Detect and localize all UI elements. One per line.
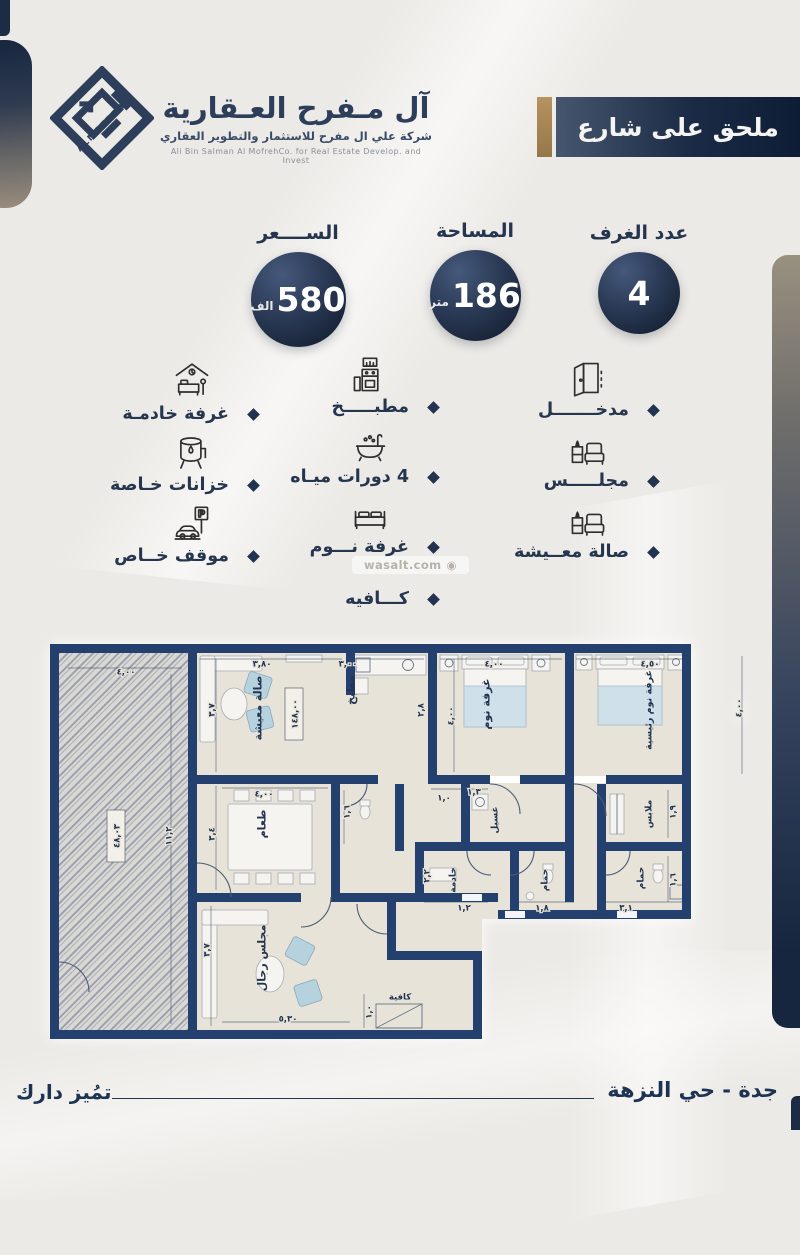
diamond-bullet-icon <box>427 541 440 554</box>
dimension-label: ٤٨,٠٣ <box>107 810 125 862</box>
svg-text:١,٠: ١,٠ <box>365 1005 375 1019</box>
feature-bathrooms: 4 دورات ميـاه <box>272 425 438 487</box>
svg-text:٣,١: ٣,١ <box>619 904 633 914</box>
almofreh-logo-icon: ALMOFREH <box>50 66 154 170</box>
kitchen-icon <box>350 355 390 395</box>
dimension-label: ٣,٧ <box>208 702 218 716</box>
feature-entrance: مدخـــــــل <box>488 358 658 420</box>
svg-text:١٤٨,٠٠: ١٤٨,٠٠ <box>291 699 301 728</box>
dimension-label: ١,٦ <box>343 805 353 819</box>
dimension-label: ٤,٥٠ <box>641 660 660 670</box>
svg-text:٣,٧: ٣,٧ <box>208 702 218 716</box>
feature-label: مدخـــــــل <box>538 400 629 420</box>
dimension-label: ١,٦ <box>669 873 679 887</box>
feature-label: مجلـــــس <box>544 471 629 491</box>
room-label: غرفة نوم رئيسية <box>644 670 655 750</box>
svg-text:٤,٠٠: ٤,٠٠ <box>117 668 136 678</box>
svg-text:١,٢: ١,٢ <box>457 904 471 914</box>
stat-area: المساحة 186 متر <box>407 220 543 341</box>
svg-text:٣,٤: ٣,٤ <box>208 827 218 841</box>
svg-text:٤,٠٠: ٤,٠٠ <box>735 699 745 718</box>
diamond-bullet-icon <box>247 550 260 563</box>
svg-text:٤,٥٠: ٤,٥٠ <box>641 660 660 670</box>
svg-text:٥,٣٠: ٥,٣٠ <box>279 1015 298 1025</box>
right-decoration-bar <box>772 255 800 1028</box>
watermark-text: wasalt.com <box>364 558 442 572</box>
features-column-left: غرفة خادمـة خزانات خـاصة P موقف خــاص <box>96 362 258 566</box>
dimension-label: ٣,٠٠ <box>339 660 358 670</box>
dimension-label: ١,٠ <box>437 794 451 804</box>
feature-cafe: كـــافيه <box>272 587 438 609</box>
living-sofa-icon <box>568 500 608 540</box>
price-value: 580 <box>277 283 346 316</box>
dimension-label: ٣,٧ <box>203 942 213 956</box>
svg-text:٤٨,٠٣: ٤٨,٠٣ <box>113 823 123 848</box>
company-subtitle-en: Ali Bin Salman Al MofrehCo. for Real Est… <box>158 147 434 165</box>
svg-text:خادمة: خادمة <box>449 867 459 893</box>
svg-text:٣,٠٠: ٣,٠٠ <box>339 660 358 670</box>
door-icon <box>568 358 608 398</box>
company-subtitle: شركة علي ال مفرح للاستثمار والتطوير العق… <box>158 129 434 143</box>
svg-text:حمام: حمام <box>541 869 551 892</box>
brand-text-block: آل مـفرح العـقارية شركة علي ال مفرح للاس… <box>158 92 434 165</box>
watermark-pin-icon: ◉ <box>447 558 457 572</box>
svg-text:غسيل: غسيل <box>491 806 501 833</box>
diamond-bullet-icon <box>427 593 440 606</box>
dimension-label: ٤,٠٠ <box>117 668 136 678</box>
dimension-label: ٥,٣٠ <box>279 1015 298 1025</box>
svg-text:١,٩: ١,٩ <box>669 804 679 818</box>
dimension-label: ١,٣ <box>467 788 481 798</box>
corner-decoration <box>791 1096 800 1130</box>
water-tank-icon <box>172 433 212 473</box>
diamond-bullet-icon <box>647 546 660 559</box>
diamond-bullet-icon <box>427 471 440 484</box>
diamond-bullet-icon <box>247 408 260 421</box>
features-column-right: مدخـــــــل مجلـــــس صالة معــيشة <box>488 358 658 562</box>
feature-label: كـــافيه <box>345 589 409 609</box>
dimension-label: ٤,٠٠ <box>485 660 504 670</box>
svg-text:٤,٠٠: ٤,٠٠ <box>447 707 457 726</box>
footer-tagline: تمُيز دارك <box>16 1080 111 1104</box>
banner-label: ملحق على شارع <box>577 113 779 142</box>
feature-label: 4 دورات ميـاه <box>290 467 409 487</box>
dimension-label: ٢,٨ <box>417 702 427 716</box>
feature-living-room: صالة معــيشة <box>488 500 658 562</box>
feature-label: صالة معــيشة <box>514 542 629 562</box>
dimension-label: ٢,٢ <box>423 868 433 882</box>
area-label: المساحة <box>436 220 514 242</box>
room-label: طعام <box>256 810 269 839</box>
feature-water-tanks: خزانات خـاصة <box>96 433 258 495</box>
parking-icon: P <box>172 504 212 544</box>
rooms-value: 4 <box>628 277 651 310</box>
diamond-bullet-icon <box>647 475 660 488</box>
dimension-label: ٤,٠٠ <box>255 790 274 800</box>
dimension-label: ١٤٨,٠٠ <box>285 688 303 740</box>
left-decoration-bar <box>0 40 32 208</box>
feature-label: مطبـــــخ <box>331 397 409 417</box>
area-circle: 186 متر <box>430 250 521 341</box>
room-label: مطبخ <box>345 675 358 705</box>
svg-text:ملابس: ملابس <box>645 800 655 829</box>
feature-bedroom: غرفة نـــوم <box>272 495 438 557</box>
maid-room-icon <box>172 362 212 402</box>
room-label: مجلس رجال <box>256 925 269 992</box>
room-label: غسيل <box>491 806 501 833</box>
dimension-label: ١,٨ <box>535 904 549 914</box>
svg-text:مطبخ: مطبخ <box>345 675 358 705</box>
feature-label: غرفة خادمـة <box>122 404 229 424</box>
dimension-label: ٣,٨٠ <box>253 660 272 670</box>
room-label: غرفة نوم <box>480 678 493 729</box>
floor-plan: صالة معيشةمطبخغرفة نومغرفة نوم رئيسيةملا… <box>50 644 750 1042</box>
feature-label: غرفة نـــوم <box>310 537 409 557</box>
room-label: خادمة <box>449 867 459 893</box>
svg-text:٣,٧: ٣,٧ <box>203 942 213 956</box>
area-value: 186 <box>452 279 521 312</box>
svg-text:غرفة نوم رئيسية: غرفة نوم رئيسية <box>644 670 655 750</box>
dimension-label: ١,٢ <box>457 904 471 914</box>
feature-kitchen: مطبـــــخ <box>272 355 438 417</box>
rooms-circle: 4 <box>598 252 680 334</box>
street-annex-banner: ملحق على شارع <box>537 97 800 157</box>
room-label: حمام <box>637 867 647 890</box>
feature-majlis: مجلـــــس <box>488 429 658 491</box>
svg-text:١,٠: ١,٠ <box>437 794 451 804</box>
dimension-label: ٤,٠٠ <box>735 699 745 718</box>
svg-text:١١,٢: ١١,٢ <box>165 826 175 846</box>
rooms-label: عدد الغرف <box>590 222 689 244</box>
banner-gold-bar <box>537 97 552 157</box>
feature-parking: P موقف خــاص <box>96 504 258 566</box>
banner-body: ملحق على شارع <box>556 97 800 157</box>
svg-text:٤,٠٠: ٤,٠٠ <box>485 660 504 670</box>
room-label: كافية <box>389 993 411 1003</box>
dimension-label: ٣,٤ <box>208 827 218 841</box>
bathtub-icon <box>350 425 390 465</box>
diamond-bullet-icon <box>427 401 440 414</box>
svg-text:١,٣: ١,٣ <box>467 788 481 798</box>
price-circle: 580 الف <box>251 252 346 347</box>
dimension-label: ٤,٠٠ <box>447 707 457 726</box>
room-label: صالة معيشة <box>252 676 265 741</box>
company-title: آل مـفرح العـقارية <box>158 92 434 125</box>
diamond-bullet-icon <box>247 479 260 492</box>
svg-text:P: P <box>198 509 205 520</box>
bed-icon <box>350 495 390 535</box>
price-label: الســــعر <box>257 222 339 244</box>
room-label: ملابس <box>645 800 655 829</box>
dimension-label: ١,٠ <box>365 1005 375 1019</box>
price-unit: الف <box>251 299 274 316</box>
feature-maid-room: غرفة خادمـة <box>96 362 258 424</box>
svg-text:كافية: كافية <box>389 993 411 1003</box>
footer-divider-line <box>112 1098 594 1099</box>
feature-label: خزانات خـاصة <box>110 475 229 495</box>
dimension-label: ١,٩ <box>669 804 679 818</box>
dimension-label: ٣,١ <box>619 904 633 914</box>
footer-location: جدة - حي النزهة <box>607 1078 778 1102</box>
svg-text:مجلس رجال: مجلس رجال <box>256 925 269 992</box>
svg-text:٢,٢: ٢,٢ <box>423 868 433 882</box>
svg-text:صالة معيشة: صالة معيشة <box>252 676 265 741</box>
feature-label: موقف خــاص <box>114 546 229 566</box>
watermark: wasalt.com ◉ <box>352 556 469 574</box>
svg-text:٢,٨: ٢,٨ <box>417 702 427 716</box>
dimension-label: ١١,٢ <box>165 826 175 846</box>
majlis-sofa-icon <box>568 429 608 469</box>
corner-decoration <box>0 0 10 36</box>
stat-rooms: عدد الغرف 4 <box>577 222 701 334</box>
room-label: حمام <box>541 869 551 892</box>
stat-price: الســــعر 580 الف <box>230 222 366 347</box>
svg-text:١,٨: ١,٨ <box>535 904 549 914</box>
svg-text:طعام: طعام <box>256 810 269 839</box>
svg-text:حمام: حمام <box>637 867 647 890</box>
svg-text:غرفة نوم: غرفة نوم <box>480 678 493 729</box>
svg-text:٤,٠٠: ٤,٠٠ <box>255 790 274 800</box>
diamond-bullet-icon <box>647 404 660 417</box>
area-unit: متر <box>429 295 449 312</box>
svg-text:٣,٨٠: ٣,٨٠ <box>253 660 272 670</box>
svg-text:١,٦: ١,٦ <box>343 805 353 819</box>
svg-text:١,٦: ١,٦ <box>669 873 679 887</box>
